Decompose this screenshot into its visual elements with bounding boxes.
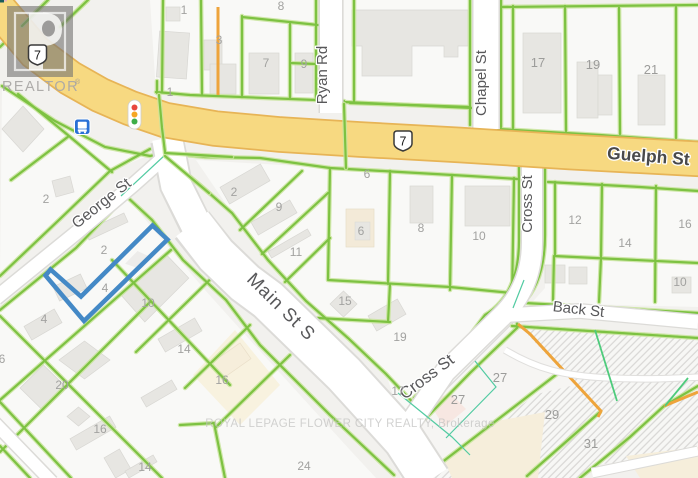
svg-text:31: 31 (584, 436, 598, 451)
svg-text:6: 6 (0, 352, 6, 366)
svg-text:Cross St: Cross St (519, 174, 536, 232)
svg-text:19: 19 (393, 330, 407, 344)
svg-text:15: 15 (338, 294, 352, 308)
svg-text:8: 8 (278, 0, 285, 13)
svg-text:ROYAL LEPAGE FLOWER CITY REALT: ROYAL LEPAGE FLOWER CITY REALTY, Brokera… (205, 418, 495, 430)
svg-text:14: 14 (138, 460, 152, 474)
svg-text:21: 21 (644, 62, 658, 77)
svg-text:20: 20 (55, 378, 69, 392)
svg-text:16: 16 (678, 217, 692, 231)
svg-text:29: 29 (545, 407, 559, 422)
svg-text:6: 6 (364, 167, 371, 181)
svg-text:2: 2 (231, 185, 238, 199)
svg-text:10: 10 (673, 275, 687, 289)
svg-text:19: 19 (586, 57, 600, 72)
svg-text:4: 4 (41, 312, 48, 326)
svg-text:16: 16 (215, 373, 229, 387)
svg-text:14: 14 (177, 342, 191, 356)
svg-text:6: 6 (358, 224, 365, 238)
svg-text:27: 27 (493, 370, 507, 385)
svg-text:1: 1 (167, 85, 174, 99)
svg-text:16: 16 (93, 422, 107, 436)
svg-text:REALTOR: REALTOR (2, 79, 79, 95)
svg-text:10: 10 (141, 296, 155, 310)
svg-text:11: 11 (290, 245, 303, 259)
svg-text:8: 8 (418, 221, 425, 235)
svg-text:24: 24 (297, 459, 311, 473)
svg-text:Chapel St: Chapel St (473, 49, 490, 116)
svg-text:7: 7 (34, 48, 41, 62)
svg-text:7: 7 (263, 56, 270, 70)
svg-text:®: ® (75, 78, 81, 86)
svg-text:2: 2 (43, 192, 50, 206)
svg-text:7: 7 (400, 134, 407, 148)
svg-text:27: 27 (451, 392, 465, 407)
svg-text:14: 14 (618, 236, 632, 250)
svg-text:17: 17 (531, 55, 545, 70)
svg-text:Ryan Rd: Ryan Rd (314, 46, 331, 104)
svg-text:1: 1 (181, 3, 188, 17)
svg-text:2: 2 (101, 243, 108, 257)
svg-text:9: 9 (276, 200, 283, 214)
svg-text:10: 10 (472, 229, 486, 243)
svg-text:12: 12 (568, 213, 582, 227)
svg-text:4: 4 (102, 281, 109, 295)
svg-text:9: 9 (301, 57, 308, 71)
svg-text:17: 17 (391, 384, 405, 398)
svg-text:3: 3 (216, 33, 223, 47)
